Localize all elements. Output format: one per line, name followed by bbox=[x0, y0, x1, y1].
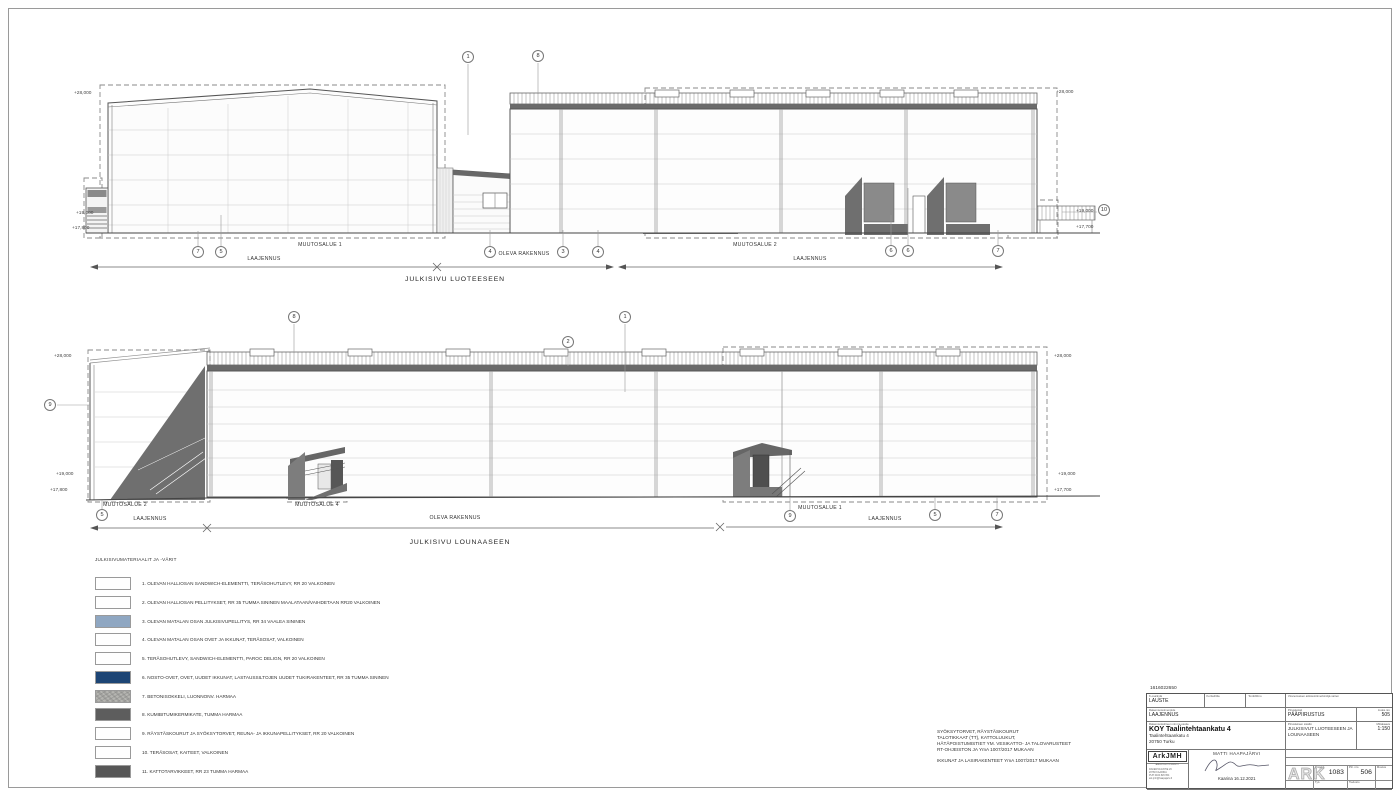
cell-label: Tiedosto bbox=[1349, 781, 1374, 784]
elevation-mark: +28,000 bbox=[74, 91, 91, 96]
cell-district: K.osa/kylä LAUSTE bbox=[1147, 694, 1205, 708]
drawing1-title: JULKISIVU LUOTEESEEN bbox=[375, 276, 535, 283]
cell-label: Tontti/Rnro bbox=[1248, 695, 1283, 698]
legend-swatch-9 bbox=[95, 727, 131, 740]
empty-row bbox=[1286, 750, 1392, 758]
cell-drawing-type: Piirustuslaji PÄÄPIIRUSTUS bbox=[1286, 708, 1357, 722]
elevation-mark: +28,000 bbox=[1056, 90, 1073, 95]
callout-8: 8 bbox=[288, 311, 300, 323]
area-label-muutosalue4: MUUTOSALUE 4 bbox=[277, 502, 357, 508]
cell-action: Rakennustoimenpide LAAJENNUS bbox=[1147, 708, 1286, 722]
legend-item: 8. KUMIBITUMIKERMIKATE, TUMMA HARMAA bbox=[142, 712, 242, 717]
elevation-mark: +19,000 bbox=[76, 211, 93, 216]
area-label-muutosalue1: MUUTOSALUE 1 bbox=[780, 505, 860, 511]
title-block-table: K.osa/kylä LAUSTE Kortteli/tila Tontti/R… bbox=[1146, 693, 1393, 789]
cell-project: Rakennuskohteen nimi ja osoite KOY Taali… bbox=[1147, 722, 1286, 750]
signature bbox=[1203, 756, 1273, 774]
action-value: LAAJENNUS bbox=[1149, 712, 1178, 718]
elevation-mark: +17,700 bbox=[1076, 225, 1093, 230]
firm-logo: ArkJMH bbox=[1148, 751, 1187, 762]
area-label-muutosalue1: MUUTOSALUE 1 bbox=[280, 242, 360, 248]
legend-swatch-11 bbox=[95, 765, 131, 778]
span-label-laajennus-right: LAAJENNUS bbox=[845, 516, 925, 522]
drawing-content-line1: JULKISIVUT LUOTEESEEN JA bbox=[1288, 726, 1353, 731]
drawing-sheet: 1 8 7 5 4 3 4 6 6 7 10 +28,000 +19,000 +… bbox=[0, 0, 1400, 792]
elevation-mark: +28,000 bbox=[1054, 354, 1071, 359]
callout-7: 7 bbox=[192, 246, 204, 258]
elevation-mark: +17,700 bbox=[1054, 488, 1071, 493]
legend-item: 10. TERÄSOSAT, KAITEET, VALKOINEN bbox=[142, 750, 228, 755]
legend-item: 7. BETONISOKKELI, LUONNONV. HARMAA bbox=[142, 694, 236, 699]
area-label-muutosalue2: MUUTOSALUE 2 bbox=[715, 242, 795, 248]
legend-item: 11. KATTOTARVIKKEET, RR 23 TUMMA HARMAA bbox=[142, 769, 248, 774]
cell-label: Viranomaisen arkistointimerkintöjä varte… bbox=[1288, 695, 1390, 698]
title-block: 1616022650 K.osa/kylä LAUSTE Kortteli/ti… bbox=[1146, 684, 1393, 789]
drawing-type-value: PÄÄPIIRUSTUS bbox=[1288, 712, 1325, 718]
legend-swatch-1 bbox=[95, 577, 131, 590]
callout-7b: 7 bbox=[992, 245, 1004, 257]
elevation-linework bbox=[0, 0, 1400, 792]
span-label-oleva-rakennus: OLEVA RAKENNUS bbox=[484, 251, 564, 257]
callout-9-left: 9 bbox=[44, 399, 56, 411]
cell-label: Muutos bbox=[1377, 766, 1391, 769]
legend-swatch-5 bbox=[95, 652, 131, 665]
span-label-laajennus-left: LAAJENNUS bbox=[224, 256, 304, 262]
cell-block: Kortteli/tila bbox=[1205, 694, 1247, 708]
firm-address-line: ark.jmh@haapajarvi.fi bbox=[1149, 778, 1188, 781]
legend-item: 4. OLEVAN MATALAN OSAN OVET JA IKKUNAT, … bbox=[142, 637, 304, 642]
elevation-mark: +19,000 bbox=[1058, 472, 1075, 477]
general-notes: SYÖKSYTORVET, RÄYSTÄSKOURUT TALOTIKKAAT … bbox=[937, 729, 1137, 764]
legend-swatch-4 bbox=[95, 633, 131, 646]
cell-label: Kortteli/tila bbox=[1207, 695, 1244, 698]
legend-swatch-2 bbox=[95, 596, 131, 609]
firm-tagline: ARKKITEHTITOIMISTO bbox=[1147, 763, 1188, 767]
elevation-mark: +28,000 bbox=[54, 354, 71, 359]
cell-plot: Tontti/Rnro bbox=[1246, 694, 1286, 708]
cell-drawing-number: Piir. nro 506 bbox=[1348, 766, 1376, 780]
district-value: LAUSTE bbox=[1149, 698, 1168, 704]
running-number-value: 505 bbox=[1382, 712, 1390, 718]
legend-item: 2. OLEVAN HALLIOSAN PELLITYKSET, RR 35 T… bbox=[142, 600, 380, 605]
callout-1: 1 bbox=[619, 311, 631, 323]
legend-item: 6. NOSTO-OVET, OVET, UUDET IKKUNAT, LAST… bbox=[142, 675, 389, 680]
elevation-mark: +19,000 bbox=[1076, 209, 1093, 214]
note-line: IKKUNAT JA LASIRAKENTEET YmA 1007/2017 M… bbox=[937, 758, 1137, 764]
project-address: Taalintehtaankatu 4 bbox=[1149, 733, 1189, 738]
callout-9: 9 bbox=[784, 510, 796, 522]
span-label-laajennus-right: LAAJENNUS bbox=[770, 256, 850, 262]
legend-swatch-8 bbox=[95, 708, 131, 721]
signature-place-date: Kaarina 16.12.2021 bbox=[1191, 776, 1283, 781]
callout-10: 10 bbox=[1098, 204, 1110, 216]
callout-2: 2 bbox=[562, 336, 574, 348]
span-label-laajennus-left: LAAJENNUS bbox=[110, 516, 190, 522]
callout-7: 7 bbox=[991, 509, 1003, 521]
cell-authority: Viranomaisen arkistointimerkintöjä varte… bbox=[1286, 694, 1392, 708]
permit-number: 1616022650 bbox=[1150, 686, 1177, 691]
d2-linework bbox=[57, 324, 1100, 532]
cell-empty bbox=[1376, 781, 1392, 789]
drawing-content-line2: LOUNAASEEN bbox=[1288, 732, 1319, 737]
ark-stamp: ARK bbox=[1288, 766, 1326, 784]
cell-firm: ArkJMH ARKKITEHTITOIMISTO RAKENTAJANTIE … bbox=[1147, 750, 1189, 790]
elevation-mark: +17,800 bbox=[50, 488, 67, 493]
callout-6b: 6 bbox=[902, 245, 914, 257]
project-name: KOY Taalintehtaankatu 4 bbox=[1149, 726, 1231, 733]
cell-signer: MATTI HAAPAJÄRVI Kaarina 16.12.2021 bbox=[1189, 750, 1286, 790]
cell-revision: Muutos bbox=[1376, 766, 1392, 780]
legend-swatch-7 bbox=[95, 690, 131, 703]
scale-value: 1:150 bbox=[1377, 726, 1390, 732]
legend-item: 3. OLEVAN MATALAN OSAN JULKISIVUPELLITYS… bbox=[142, 619, 305, 624]
callout-4b: 4 bbox=[592, 246, 604, 258]
callout-5-left: 5 bbox=[96, 509, 108, 521]
cell-running-number: Juoks.nro 505 bbox=[1357, 708, 1392, 722]
drawing2-title: JULKISIVU LOUNAASEEN bbox=[380, 539, 540, 546]
area-label-muutosalue2: MUUTOSALUE 2 bbox=[85, 502, 165, 508]
legend-item: 1. OLEVAN HALLIOSAN SANDWICH-ELEMENTTI, … bbox=[142, 581, 335, 586]
callout-5: 5 bbox=[929, 509, 941, 521]
legend-item: 9. RÄYSTÄSKOURUT JA SYÖKSYTORVET, REUNA-… bbox=[142, 731, 354, 736]
legend-swatch-10 bbox=[95, 746, 131, 759]
cell-file: Tiedosto bbox=[1348, 781, 1376, 789]
project-city: 20750 Turku bbox=[1149, 739, 1175, 744]
callout-1: 1 bbox=[462, 51, 474, 63]
elevation-mark: +17,800 bbox=[72, 226, 89, 231]
elevation-mark: +19,000 bbox=[56, 472, 73, 477]
legend-title: JULKISIVUMATERIAALIT JA -VÄRIT bbox=[95, 557, 177, 562]
d1-linework bbox=[84, 63, 1100, 271]
cell-content: Piirustuksen sisältö JULKISIVUT LUOTEESE… bbox=[1286, 722, 1357, 750]
legend-item: 5. TERÄSOHUTLEVY, SANDWICH-ELEMENTTI, PA… bbox=[142, 656, 325, 661]
callout-6: 6 bbox=[885, 245, 897, 257]
note-line: RT-OHJEISTON JA YmA 1007/2017 MUKAAN bbox=[937, 747, 1137, 753]
legend-swatch-3 bbox=[95, 615, 131, 628]
legend-swatch-6 bbox=[95, 671, 131, 684]
drawing-number: 506 bbox=[1349, 769, 1374, 776]
cell-scale: Mittakaava 1:150 bbox=[1357, 722, 1392, 750]
span-label-oleva-rakennus: OLEVA RAKENNUS bbox=[415, 515, 495, 521]
callout-8: 8 bbox=[532, 50, 544, 62]
